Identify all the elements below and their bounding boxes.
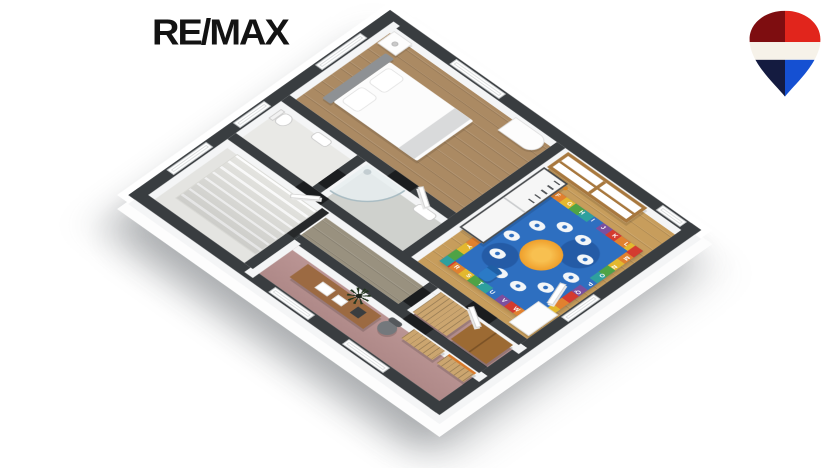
floorplan: F G H I J K L R S T U V W E D C B A Z Y … bbox=[128, 10, 701, 415]
table-lamp bbox=[390, 41, 400, 48]
remax-logo: RE/MAX bbox=[152, 13, 288, 54]
floorplan-render-canvas: RE/MAX F G H I J K L R S T U V bbox=[0, 0, 832, 468]
laptop bbox=[350, 307, 367, 319]
desk-papers bbox=[314, 282, 335, 297]
remax-balloon-icon bbox=[744, 8, 826, 98]
